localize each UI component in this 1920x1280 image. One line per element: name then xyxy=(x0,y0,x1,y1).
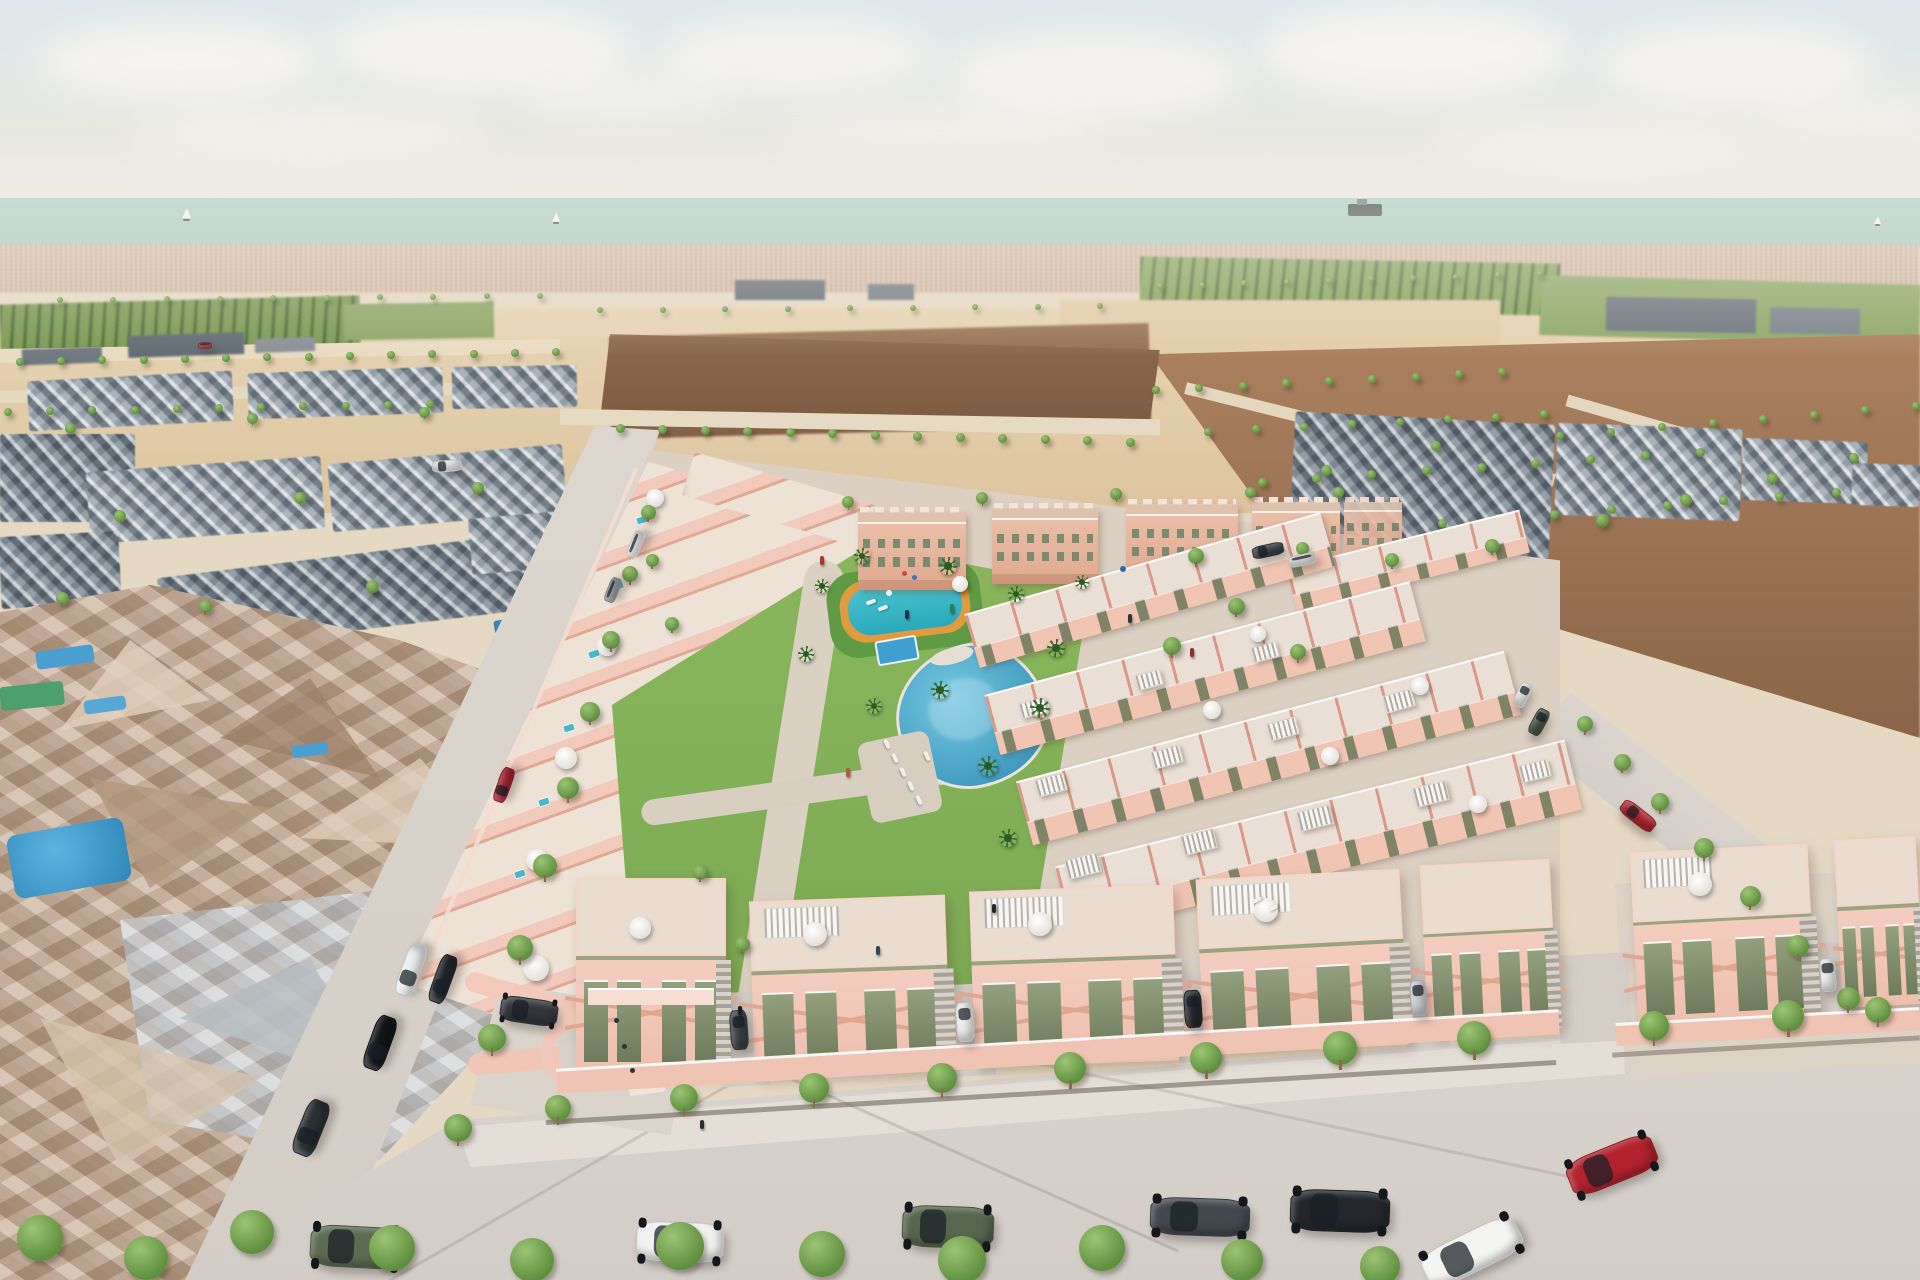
aerial-render-scene xyxy=(0,0,1920,1280)
tree-canopy xyxy=(1367,470,1376,479)
cargo-ship-icon xyxy=(1348,204,1382,216)
person xyxy=(876,946,880,955)
field-tree xyxy=(1126,438,1135,447)
field-tree xyxy=(1495,272,1501,278)
tree-trunk xyxy=(300,502,301,506)
tree-canopy xyxy=(1204,428,1212,436)
field-tree xyxy=(215,404,223,412)
street-tree xyxy=(65,423,76,434)
foreground-tree xyxy=(1079,1225,1125,1271)
field-tree xyxy=(616,424,625,433)
tree-trunk xyxy=(1116,498,1117,502)
tree-trunk xyxy=(1297,658,1298,663)
villa-roof-terrace xyxy=(1630,843,1811,922)
tree-trunk xyxy=(252,422,253,425)
field-tree xyxy=(1157,283,1163,289)
car-wheel xyxy=(1378,1188,1387,1199)
villa-window xyxy=(1682,939,1714,1013)
tree-canopy xyxy=(1152,386,1160,394)
street-tree xyxy=(1485,539,1499,553)
tree-canopy xyxy=(552,348,560,356)
hull xyxy=(553,222,559,224)
tree-trunk xyxy=(1877,1019,1879,1027)
car-wheel xyxy=(1291,1223,1300,1234)
tree-canopy xyxy=(384,401,392,409)
tree-canopy xyxy=(1195,384,1203,392)
tree-trunk xyxy=(1473,1050,1476,1060)
parasol-icon xyxy=(1203,701,1221,719)
cloud xyxy=(40,24,320,98)
tree-canopy xyxy=(1326,278,1332,284)
tree-trunk xyxy=(120,520,121,524)
field-tree xyxy=(1709,419,1717,427)
palm-tree xyxy=(1047,639,1065,657)
car-glass xyxy=(1186,995,1199,1007)
scanned-houses xyxy=(452,365,578,409)
field-tree xyxy=(1258,478,1267,487)
tree-canopy xyxy=(342,402,350,410)
field-tree xyxy=(1719,496,1728,505)
tree-canopy xyxy=(511,349,519,357)
street-tree xyxy=(1787,935,1809,957)
field-tree xyxy=(1586,455,1595,464)
field-tree xyxy=(1410,275,1416,281)
field-tree xyxy=(1041,435,1050,444)
tree-trunk xyxy=(1205,1070,1208,1080)
car-mini xyxy=(955,1001,976,1042)
apartment-roof xyxy=(858,512,966,524)
street-tree xyxy=(622,566,638,582)
tree-trunk xyxy=(1069,1080,1072,1090)
street-tree xyxy=(799,1073,829,1103)
tree-canopy xyxy=(956,433,965,442)
street-tree xyxy=(1639,1011,1669,1041)
field-tree xyxy=(1540,410,1548,418)
tree-canopy xyxy=(1410,275,1416,281)
tree-canopy xyxy=(1641,451,1650,460)
field-tree xyxy=(1453,274,1459,280)
field-tree xyxy=(828,429,837,438)
field-tree xyxy=(871,431,880,440)
street-tree xyxy=(1188,548,1204,564)
tree-canopy xyxy=(743,427,752,436)
villa-pergola xyxy=(763,906,841,939)
tree-canopy xyxy=(1540,410,1548,418)
tree-canopy xyxy=(57,297,63,303)
tree-trunk xyxy=(1797,954,1799,961)
tree-canopy xyxy=(1498,368,1506,376)
sail xyxy=(1874,216,1881,224)
cloud xyxy=(1260,6,1570,98)
tree-trunk xyxy=(848,506,849,510)
field-tree xyxy=(1775,492,1784,501)
foreground-tree xyxy=(510,1238,554,1280)
field-tree xyxy=(1097,303,1103,309)
tree-canopy xyxy=(98,356,106,364)
field-tree xyxy=(305,353,313,361)
person xyxy=(992,904,996,913)
person xyxy=(1190,648,1194,657)
field-tree xyxy=(1531,459,1540,468)
tree-canopy xyxy=(1495,272,1501,278)
field-tree xyxy=(1368,375,1376,383)
tree-trunk xyxy=(1653,1037,1656,1046)
tree-trunk xyxy=(1749,904,1751,910)
field-tree xyxy=(1492,413,1500,421)
tree-canopy xyxy=(1455,370,1463,378)
tree-canopy xyxy=(786,428,795,437)
cloud xyxy=(950,34,1240,116)
tree-canopy xyxy=(1912,402,1920,410)
field-tree xyxy=(972,304,978,310)
tree-canopy xyxy=(110,297,116,303)
person xyxy=(820,556,824,565)
tree-canopy xyxy=(270,295,276,301)
parasol-icon xyxy=(1469,795,1487,813)
tree-canopy xyxy=(222,354,230,362)
field-tree xyxy=(384,401,392,409)
tree-trunk xyxy=(544,875,546,882)
tree-canopy xyxy=(140,356,148,364)
tree-canopy xyxy=(660,307,666,313)
tree-canopy xyxy=(305,353,313,361)
tree-canopy xyxy=(913,432,922,441)
hull xyxy=(183,219,190,221)
car-glass xyxy=(438,461,447,471)
palm-tree xyxy=(866,698,882,714)
sailboat-icon xyxy=(1874,216,1881,226)
tree-canopy xyxy=(1492,413,1500,421)
field-tree xyxy=(1368,276,1374,282)
field-tree xyxy=(1195,384,1203,392)
field-tree xyxy=(552,348,560,356)
tree-trunk xyxy=(1338,496,1339,499)
field-tree xyxy=(1438,519,1447,528)
tree-trunk xyxy=(1326,474,1327,477)
field-tree xyxy=(658,425,667,434)
tree-trunk xyxy=(1686,504,1687,508)
field-tree xyxy=(57,357,65,365)
parasol-icon xyxy=(1321,747,1339,765)
palm-tree xyxy=(939,557,957,575)
tree-canopy xyxy=(1282,379,1290,387)
tree-canopy xyxy=(537,293,543,299)
tree-canopy xyxy=(972,304,978,310)
field-tree xyxy=(1912,402,1920,410)
street-tree xyxy=(1290,644,1306,660)
tree-canopy xyxy=(1083,436,1092,445)
tree-canopy xyxy=(1849,453,1859,463)
field-tree xyxy=(1658,423,1666,431)
street-tree xyxy=(665,617,679,631)
tree-canopy xyxy=(1537,271,1543,277)
tree-trunk xyxy=(1703,855,1705,861)
tree-canopy xyxy=(131,406,139,414)
field-tree xyxy=(1556,432,1564,440)
street-tree xyxy=(1190,1042,1222,1074)
car-glass xyxy=(1822,963,1834,974)
villa-roof-terrace xyxy=(1420,859,1553,935)
car-suv xyxy=(1289,1188,1390,1233)
tree-canopy xyxy=(124,1236,168,1280)
tree-trunk xyxy=(941,1089,944,1098)
cloud xyxy=(790,104,1100,158)
car-glass xyxy=(328,1229,355,1264)
street-tree xyxy=(114,510,126,522)
field-tree xyxy=(342,402,350,410)
car-wheel xyxy=(1238,1196,1247,1206)
cloud xyxy=(1440,116,1770,178)
field-left xyxy=(344,302,495,341)
tree-canopy xyxy=(1696,448,1705,457)
tree-trunk xyxy=(1250,496,1251,499)
tree-trunk xyxy=(1787,1028,1790,1038)
tree-trunk xyxy=(70,432,71,435)
foreground-tree xyxy=(938,1236,986,1280)
palm-tree xyxy=(815,579,829,593)
car-body xyxy=(1149,1196,1250,1237)
palm-tree xyxy=(1030,698,1050,718)
field-tree xyxy=(140,356,148,364)
street-tree xyxy=(419,407,430,418)
car-body xyxy=(1289,1188,1390,1233)
tree-canopy xyxy=(799,1231,845,1277)
shed xyxy=(255,337,315,353)
field-tree xyxy=(346,352,354,360)
field-tree xyxy=(1810,411,1818,419)
tree-canopy xyxy=(263,353,271,361)
tree-trunk xyxy=(1659,808,1661,813)
factory xyxy=(1770,307,1860,335)
tree-canopy xyxy=(324,295,330,301)
scanned-houses xyxy=(86,456,325,544)
street-tree xyxy=(693,865,708,880)
car-mini xyxy=(1819,957,1837,992)
parasol-icon xyxy=(803,922,827,946)
tree-canopy xyxy=(1199,282,1205,288)
foreground-tree xyxy=(124,1236,168,1280)
street-tree xyxy=(976,492,988,504)
person xyxy=(950,604,954,613)
street-tree xyxy=(557,777,579,799)
tree-canopy xyxy=(1453,274,1459,280)
factory xyxy=(1606,297,1757,334)
car-mini xyxy=(432,459,463,473)
tree-canopy xyxy=(1126,438,1135,447)
car-mini xyxy=(1409,979,1428,1016)
villa-pergola xyxy=(1210,882,1291,917)
field-tree xyxy=(785,306,791,312)
street-tree xyxy=(1865,997,1891,1023)
object-speck xyxy=(902,571,907,576)
shed xyxy=(735,280,825,300)
street-tree xyxy=(1228,598,1245,615)
tree-canopy xyxy=(387,351,395,359)
tree-canopy xyxy=(1041,435,1050,444)
street-tree xyxy=(199,600,212,613)
field-tree xyxy=(173,405,181,413)
tree-trunk xyxy=(371,591,372,595)
apartment-block xyxy=(992,508,1098,584)
field-tree xyxy=(217,296,223,302)
cloud xyxy=(520,66,730,120)
field-tree xyxy=(1367,470,1376,479)
street-tree xyxy=(1321,465,1332,476)
tree-trunk xyxy=(629,580,630,585)
field-tree xyxy=(998,434,1007,443)
field-tree xyxy=(1498,368,1506,376)
street-tree xyxy=(1694,838,1714,858)
tree-canopy xyxy=(998,434,1007,443)
person xyxy=(846,768,850,777)
scanned-houses xyxy=(1851,463,1920,507)
villa-roof-terrace xyxy=(576,878,726,956)
person xyxy=(1128,614,1132,623)
tree-canopy xyxy=(597,307,603,313)
car-glass xyxy=(1169,1201,1198,1232)
tree-canopy xyxy=(1719,496,1728,505)
tree-trunk xyxy=(519,957,521,965)
tree-canopy xyxy=(1810,411,1818,419)
villa-roof-terrace xyxy=(969,884,1175,961)
apartment-windows xyxy=(1132,529,1233,538)
field-tree xyxy=(428,350,436,358)
field-tree xyxy=(956,433,965,442)
tree-canopy xyxy=(16,358,24,366)
field-tree xyxy=(1083,436,1092,445)
tree-canopy xyxy=(1663,501,1672,510)
car-wheel xyxy=(1292,1185,1301,1196)
tree-trunk xyxy=(1195,562,1196,567)
apartment-base xyxy=(858,580,966,590)
field-tree xyxy=(387,351,395,359)
field-tree xyxy=(1326,278,1332,284)
field-tree xyxy=(1696,448,1705,457)
scanned-houses xyxy=(27,371,234,432)
street-tree xyxy=(1163,637,1181,655)
car-glass xyxy=(958,1008,971,1021)
tree-canopy xyxy=(1368,276,1374,282)
car-wheel xyxy=(638,1217,646,1228)
field-tree xyxy=(1759,415,1767,423)
street-tree xyxy=(1596,514,1609,527)
foreground-tree xyxy=(230,1210,274,1254)
tree-canopy xyxy=(910,305,916,311)
tree-canopy xyxy=(164,296,170,302)
palm-tree xyxy=(999,829,1017,847)
tree-canopy xyxy=(1325,377,1333,385)
parasol-icon xyxy=(1028,912,1052,936)
car-wheel xyxy=(1151,1227,1160,1237)
street-tree xyxy=(1110,488,1122,500)
palm-tree xyxy=(1008,586,1024,602)
hull xyxy=(1875,224,1881,226)
tree-canopy xyxy=(1658,423,1666,431)
tree-trunk xyxy=(204,611,205,615)
tree-canopy xyxy=(299,402,307,410)
field-tree xyxy=(1455,370,1463,378)
tree-trunk xyxy=(671,629,672,633)
tree-trunk xyxy=(478,492,479,496)
palm-tree xyxy=(931,681,949,699)
street-tree xyxy=(294,492,306,504)
street-tree xyxy=(580,702,600,722)
field-tree xyxy=(660,307,666,313)
street-tree xyxy=(1849,453,1859,463)
tree-canopy xyxy=(1252,425,1260,433)
tree-trunk xyxy=(1601,525,1602,529)
tree-trunk xyxy=(647,517,648,522)
tree-trunk xyxy=(1847,1006,1849,1013)
street-tree xyxy=(1054,1052,1086,1084)
tree-canopy xyxy=(88,406,96,414)
scanned-houses xyxy=(1554,423,1742,521)
car-wheel xyxy=(1377,1226,1386,1237)
object-speck xyxy=(886,590,892,596)
field-tree xyxy=(1204,428,1212,436)
parasol-icon xyxy=(1688,872,1712,896)
tree-canopy xyxy=(785,306,791,312)
tree-canopy xyxy=(1241,280,1247,286)
car-glass xyxy=(1309,1193,1338,1228)
car-body xyxy=(432,459,463,473)
tree-canopy xyxy=(938,1236,986,1280)
tree-canopy xyxy=(871,431,880,440)
car-wheel xyxy=(983,1204,992,1215)
tree-canopy xyxy=(430,294,436,300)
street-tree xyxy=(1431,441,1441,451)
tree-trunk xyxy=(1339,1060,1342,1070)
tree-canopy xyxy=(1368,375,1376,383)
scanned-houses xyxy=(1741,438,1868,504)
foreground-tree xyxy=(1360,1246,1400,1280)
field-tree xyxy=(16,358,24,366)
parasol-icon xyxy=(1250,626,1266,642)
tree-canopy xyxy=(46,407,54,415)
field-tree xyxy=(910,305,916,311)
field-tree xyxy=(1284,279,1290,285)
field-tree xyxy=(1239,382,1247,390)
parasol-icon xyxy=(1411,677,1429,695)
tree-canopy xyxy=(722,306,728,312)
field-tree xyxy=(1861,406,1869,414)
villa-roof-terrace xyxy=(1834,836,1919,907)
tree-canopy xyxy=(658,425,667,434)
sea xyxy=(0,198,1920,248)
tree-canopy xyxy=(1531,459,1540,468)
person xyxy=(905,610,909,619)
villa-window xyxy=(1643,941,1675,1015)
street-tree xyxy=(602,631,620,649)
sailboat-icon xyxy=(182,208,191,221)
street-tree xyxy=(507,935,533,961)
tree-trunk xyxy=(813,1099,816,1108)
tree-canopy xyxy=(57,357,65,365)
tree-trunk xyxy=(491,1048,494,1056)
field-tree xyxy=(743,427,752,436)
villa-roof-terrace xyxy=(749,895,947,972)
apartment-roof xyxy=(992,508,1098,520)
field-tree xyxy=(847,305,853,311)
tree-canopy xyxy=(1097,303,1103,309)
tree-trunk xyxy=(699,877,700,882)
car-mini xyxy=(729,1009,750,1050)
tree-trunk xyxy=(982,502,983,506)
field-tree xyxy=(597,307,603,313)
tree-canopy xyxy=(510,1238,554,1280)
field-tree xyxy=(1300,423,1308,431)
tree-canopy xyxy=(616,424,625,433)
